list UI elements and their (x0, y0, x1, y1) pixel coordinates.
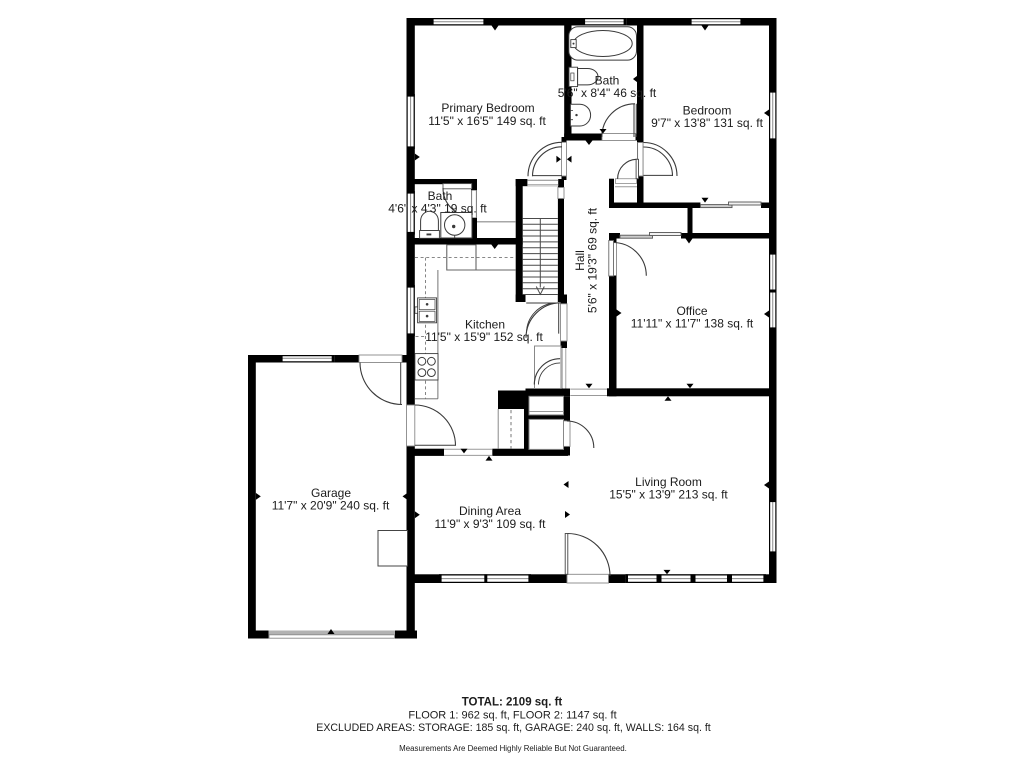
svg-text:11'5" x 15'9" 152 sq. ft: 11'5" x 15'9" 152 sq. ft (425, 330, 543, 344)
svg-text:Measurements Are Deemed Highly: Measurements Are Deemed Highly Reliable … (399, 744, 627, 753)
svg-text:11'9" x 9'3" 109 sq. ft: 11'9" x 9'3" 109 sq. ft (435, 517, 547, 531)
svg-text:EXCLUDED AREAS: STORAGE: 185 s: EXCLUDED AREAS: STORAGE: 185 sq. ft, GAR… (316, 722, 711, 734)
svg-text:TOTAL: 2109 sq. ft: TOTAL: 2109 sq. ft (462, 697, 563, 709)
svg-text:FLOOR 1: 962 sq. ft, FLOOR 2:: FLOOR 1: 962 sq. ft, FLOOR 2: 1147 sq. f… (408, 709, 616, 721)
svg-text:15'5" x 13'9" 213 sq. ft: 15'5" x 13'9" 213 sq. ft (609, 488, 728, 502)
svg-text:11'5" x 16'5" 149 sq. ft: 11'5" x 16'5" 149 sq. ft (428, 114, 546, 128)
svg-text:5'6" x 19'3" 69 sq. ft: 5'6" x 19'3" 69 sq. ft (586, 207, 600, 313)
svg-text:11'11" x 11'7" 138 sq. ft: 11'11" x 11'7" 138 sq. ft (631, 316, 754, 330)
svg-text:5'6" x 8'4" 46 sq. ft: 5'6" x 8'4" 46 sq. ft (558, 86, 657, 100)
svg-text:9'7" x 13'8" 131 sq. ft: 9'7" x 13'8" 131 sq. ft (651, 116, 764, 130)
svg-text:4'6" x 4'3" 19 sq. ft: 4'6" x 4'3" 19 sq. ft (388, 202, 487, 216)
svg-text:11'7" x 20'9" 240 sq. ft: 11'7" x 20'9" 240 sq. ft (272, 499, 390, 513)
